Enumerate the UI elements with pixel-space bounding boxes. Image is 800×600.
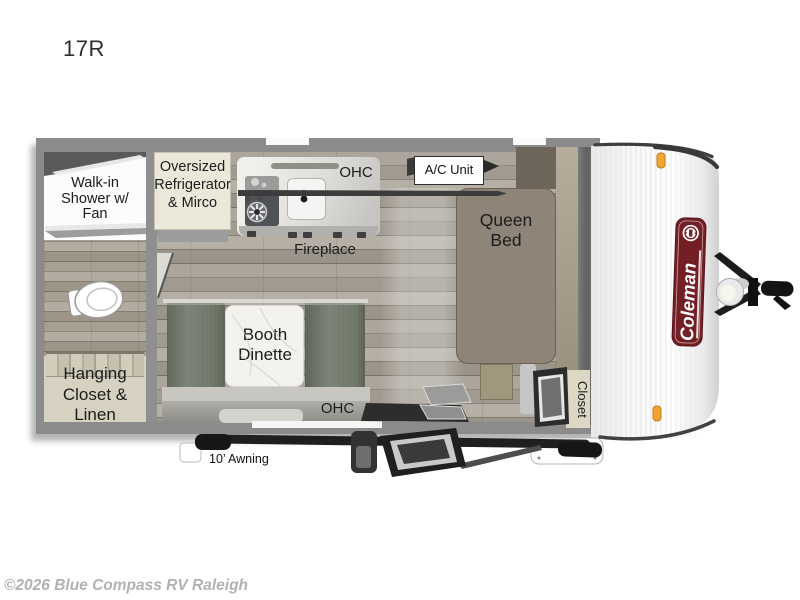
svg-text:Coleman: Coleman (676, 262, 700, 341)
